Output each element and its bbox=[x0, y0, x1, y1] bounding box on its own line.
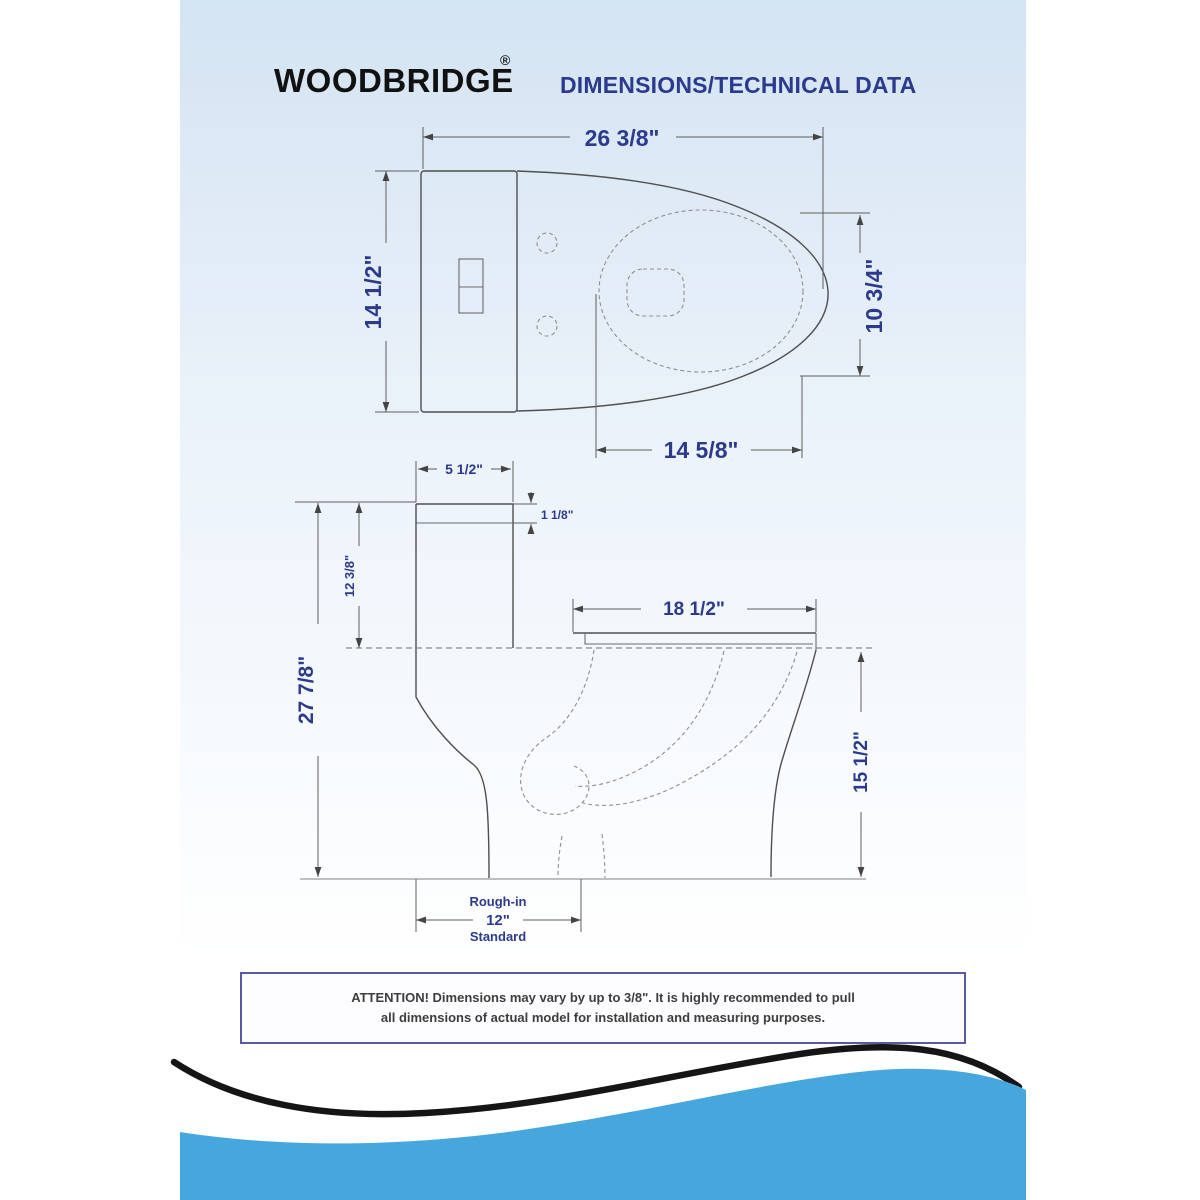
top-view-drawing: 26 3/8" 14 1/2" 10 3/4" bbox=[360, 125, 887, 463]
trapway-hidden-lines bbox=[521, 650, 797, 878]
side-view-drawing: 5 1/2" 1 1/8" 12 3/8" 27 7/8" bbox=[295, 461, 872, 944]
bolt-hole bbox=[537, 316, 557, 336]
document-page: WOODBRIDGE ® DIMENSIONS/TECHNICAL DATA bbox=[0, 0, 1200, 1200]
dim-tank-height-label: 12 3/8" bbox=[342, 555, 357, 597]
dim-bowl-opening-length: 14 5/8" bbox=[596, 294, 802, 463]
dim-overall-depth-label: 26 3/8" bbox=[585, 125, 660, 151]
dim-rim-height: 15 1/2" bbox=[851, 652, 872, 877]
rough-in-value: 12" bbox=[486, 912, 510, 929]
toilet-front-outline bbox=[771, 650, 816, 877]
dim-bowl-opening-width-label: 10 3/4" bbox=[861, 259, 887, 334]
dim-tank-width: 14 1/2" bbox=[360, 171, 419, 412]
toilet-back-outline bbox=[416, 504, 489, 878]
bolt-hole bbox=[537, 233, 557, 253]
dim-seat-depth: 18 1/2" bbox=[573, 599, 816, 632]
dim-overall-height: 27 7/8" bbox=[295, 503, 318, 877]
dim-overall-height-label: 27 7/8" bbox=[295, 656, 318, 724]
attention-line2: all dimensions of actual model for insta… bbox=[381, 1008, 825, 1028]
water-spot bbox=[627, 269, 684, 316]
dim-bowl-opening-length-label: 14 5/8" bbox=[664, 437, 739, 463]
dim-rim-height-label: 15 1/2" bbox=[851, 731, 872, 793]
dim-lid-thickness: 1 1/8" bbox=[531, 492, 573, 534]
rough-in-standard: Standard bbox=[470, 929, 526, 944]
dim-rough-in: Rough-in 12" Standard bbox=[416, 879, 581, 944]
attention-box: ATTENTION! Dimensions may vary by up to … bbox=[240, 972, 966, 1044]
flush-button bbox=[459, 259, 483, 313]
tank-outline-side bbox=[416, 504, 513, 648]
seat-outline bbox=[517, 171, 828, 411]
dim-tank-top-depth: 5 1/2" bbox=[416, 461, 513, 502]
dim-lid-thickness-label: 1 1/8" bbox=[541, 508, 573, 522]
attention-line1: ATTENTION! Dimensions may vary by up to … bbox=[351, 988, 855, 1008]
dim-tank-height: 12 3/8" bbox=[295, 502, 416, 648]
rough-in-label: Rough-in bbox=[469, 894, 526, 909]
bowl-opening bbox=[599, 210, 803, 372]
dim-tank-top-depth-label: 5 1/2" bbox=[445, 461, 483, 477]
dim-tank-width-label: 14 1/2" bbox=[360, 255, 386, 330]
dim-bowl-opening-width: 10 3/4" bbox=[800, 213, 887, 376]
tank-outline-top bbox=[421, 171, 517, 412]
dim-seat-depth-label: 18 1/2" bbox=[663, 599, 725, 620]
